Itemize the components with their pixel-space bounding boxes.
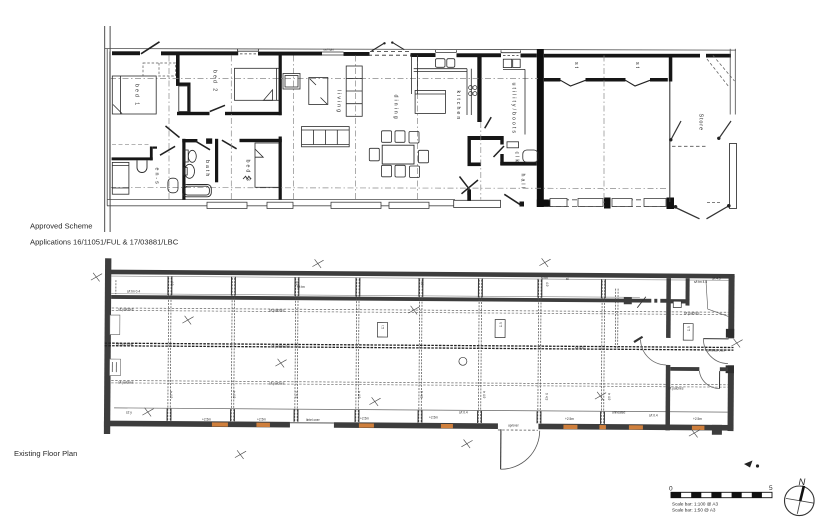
svg-text:+2.5m: +2.5m xyxy=(360,417,369,421)
svg-text:s2 y: s2 y xyxy=(126,411,132,415)
svg-text:t 5: t 5 xyxy=(381,326,385,330)
svg-text:N: N xyxy=(799,477,806,488)
svg-text:+2.5m: +2.5m xyxy=(202,418,211,422)
svg-text:hall: hall xyxy=(520,174,526,190)
svg-text:tr 4.9: tr 4.9 xyxy=(295,391,299,398)
svg-text:en-s: en-s xyxy=(154,168,160,186)
svg-text:s/t tm 0.4: s/t tm 0.4 xyxy=(127,290,140,294)
svg-text:tr 4.9: tr 4.9 xyxy=(482,391,486,398)
svg-text:s/t patches: s/t patches xyxy=(269,382,285,386)
svg-text:4.9: 4.9 xyxy=(295,281,299,286)
svg-text:+2.5m: +2.5m xyxy=(693,417,702,421)
svg-text:s/t patches: s/t patches xyxy=(684,312,700,316)
svg-text:tr 5: tr 5 xyxy=(499,323,503,328)
svg-text:tr 4.9: tr 4.9 xyxy=(357,391,361,398)
svg-text:bed 2: bed 2 xyxy=(212,70,218,93)
svg-text:+2.5m: +2.5m xyxy=(429,416,438,420)
svg-text:st: st xyxy=(634,62,640,70)
svg-text:bed 3: bed 3 xyxy=(245,160,251,183)
svg-text:tr 4.9: tr 4.9 xyxy=(607,393,611,400)
svg-text:Scale bar: 1:100 @ A3: Scale bar: 1:100 @ A3 xyxy=(672,502,718,507)
svg-text:lintel over: lintel over xyxy=(306,418,321,422)
svg-text:living: living xyxy=(336,90,342,114)
svg-text:Scale bar: 1:50 @ A3: Scale bar: 1:50 @ A3 xyxy=(672,508,716,513)
svg-text:+2.5m: +2.5m xyxy=(257,418,266,422)
svg-text:s/t patches: s/t patches xyxy=(668,387,684,391)
svg-text:Store: Store xyxy=(698,114,704,131)
svg-text:st tm: st tm xyxy=(541,276,548,280)
svg-text:s/t free tiling: s/t free tiling xyxy=(116,343,133,347)
svg-text:up/over: up/over xyxy=(508,424,520,428)
svg-text:+2.5m: +2.5m xyxy=(565,417,574,421)
svg-text:kitchen: kitchen xyxy=(455,91,461,122)
svg-text:tr 4.9: tr 4.9 xyxy=(169,391,173,398)
svg-text:4.9: 4.9 xyxy=(170,281,174,286)
svg-text:st: st xyxy=(573,62,579,70)
svg-text:st: st xyxy=(566,277,569,281)
svg-text:s/t patched in: s/t patched in xyxy=(271,345,290,349)
svg-text:s/t 0.4: s/t 0.4 xyxy=(649,414,658,418)
svg-text:5: 5 xyxy=(769,485,773,492)
svg-text:Existing Floor Plan: Existing Floor Plan xyxy=(14,449,77,458)
svg-text:tr 4.9: tr 4.9 xyxy=(545,393,549,400)
svg-text:s/t 0.4: s/t 0.4 xyxy=(459,411,468,415)
svg-text:bath: bath xyxy=(204,160,210,178)
svg-text:dining: dining xyxy=(393,95,399,121)
svg-text:bed 1: bed 1 xyxy=(134,84,140,107)
svg-text:unheated: unheated xyxy=(612,411,626,415)
svg-text:s/t 4.5: s/t 4.5 xyxy=(712,277,721,281)
svg-text:s/t patches: s/t patches xyxy=(269,309,285,313)
svg-text:roof light: roof light xyxy=(323,48,334,52)
svg-text:clk: clk xyxy=(514,152,520,164)
svg-text:s/t tm 4.5: s/t tm 4.5 xyxy=(694,280,707,284)
svg-text:s/t tm: s/t tm xyxy=(297,285,305,289)
svg-text:s/t patches: s/t patches xyxy=(118,381,134,385)
svg-text:0: 0 xyxy=(669,486,673,493)
svg-text:s/t lintel over: s/t lintel over xyxy=(707,349,726,353)
svg-text:4.9: 4.9 xyxy=(545,282,549,287)
svg-text:utility/boots: utility/boots xyxy=(511,83,517,136)
svg-text:tr 4.9: tr 4.9 xyxy=(420,391,424,398)
svg-text:s/t 4.5: s/t 4.5 xyxy=(575,346,584,350)
svg-text:tr 5: tr 5 xyxy=(687,327,691,332)
svg-text:4.9: 4.9 xyxy=(420,281,424,286)
svg-text:tr 4.9: tr 4.9 xyxy=(232,391,236,398)
svg-text:Applications 16/11051/FUL & 17: Applications 16/11051/FUL & 17/03881/LBC xyxy=(30,238,179,247)
svg-text:Approved Scheme: Approved Scheme xyxy=(30,222,92,231)
svg-text:s/t patches: s/t patches xyxy=(118,308,134,312)
